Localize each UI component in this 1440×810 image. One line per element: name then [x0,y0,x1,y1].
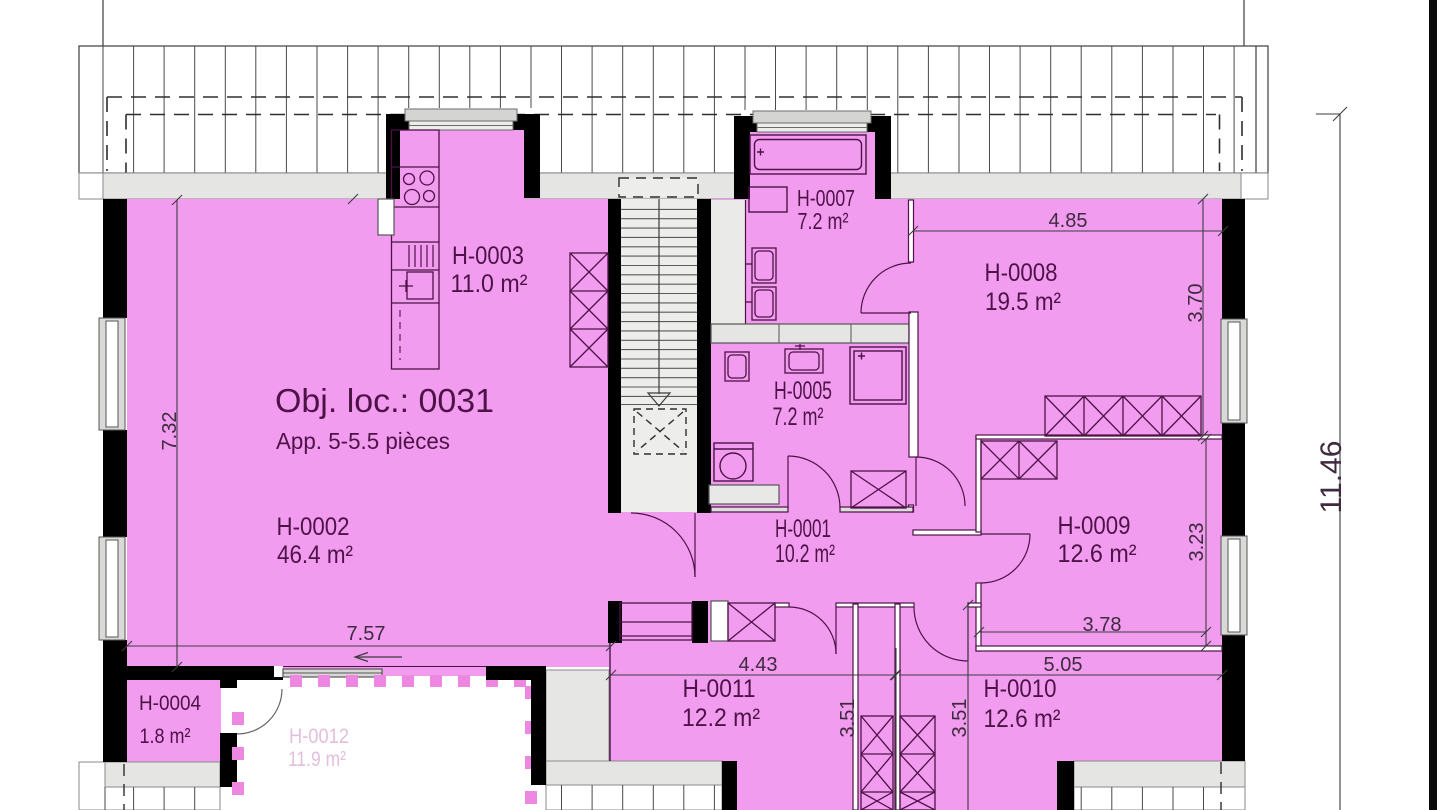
svg-text:7.32: 7.32 [159,412,181,451]
svg-text:H-0004: H-0004 [139,692,201,715]
svg-text:11.9 m²: 11.9 m² [288,748,346,771]
svg-text:1.8 m²: 1.8 m² [140,725,191,748]
svg-text:H-0003: H-0003 [452,242,524,270]
svg-text:19.5 m²: 19.5 m² [985,288,1061,316]
svg-text:12.6 m²: 12.6 m² [984,705,1061,733]
svg-text:H-0001: H-0001 [775,515,831,543]
svg-text:7.2 m²: 7.2 m² [798,208,849,234]
svg-text:3.70: 3.70 [1185,284,1207,323]
svg-text:Obj. loc.: 0031: Obj. loc.: 0031 [275,382,494,419]
svg-text:7.57: 7.57 [347,623,386,645]
svg-text:11.46: 11.46 [1315,441,1348,514]
svg-text:4.85: 4.85 [1049,210,1088,232]
svg-text:12.2 m²: 12.2 m² [682,704,760,732]
svg-text:10.2 m²: 10.2 m² [775,540,835,568]
svg-text:3.23: 3.23 [1186,523,1208,562]
svg-text:46.4 m²: 46.4 m² [277,541,353,569]
svg-text:H-0009: H-0009 [1058,512,1131,540]
svg-text:4.43: 4.43 [739,654,778,676]
svg-text:H-0011: H-0011 [683,675,756,703]
svg-text:H-0008: H-0008 [985,259,1058,287]
svg-text:5.05: 5.05 [1044,654,1083,676]
svg-text:3.51: 3.51 [837,699,859,738]
svg-text:H-0010: H-0010 [984,675,1057,703]
svg-text:H-0012: H-0012 [289,725,349,748]
svg-text:11.0 m²: 11.0 m² [451,270,528,298]
svg-text:3.78: 3.78 [1083,614,1122,636]
svg-text:12.6 m²: 12.6 m² [1058,540,1137,568]
svg-text:H-0005: H-0005 [774,377,832,405]
svg-text:H-0002: H-0002 [277,513,350,541]
svg-text:7.2 m²: 7.2 m² [773,403,824,431]
svg-text:App. 5-5.5 pièces: App. 5-5.5 pièces [276,428,450,454]
svg-text:3.51: 3.51 [949,699,971,738]
